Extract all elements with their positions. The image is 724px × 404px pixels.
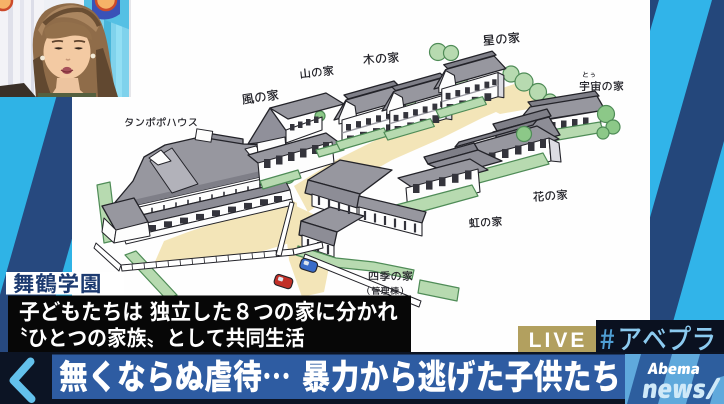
svg-text:LIVE: LIVE — [529, 329, 588, 352]
